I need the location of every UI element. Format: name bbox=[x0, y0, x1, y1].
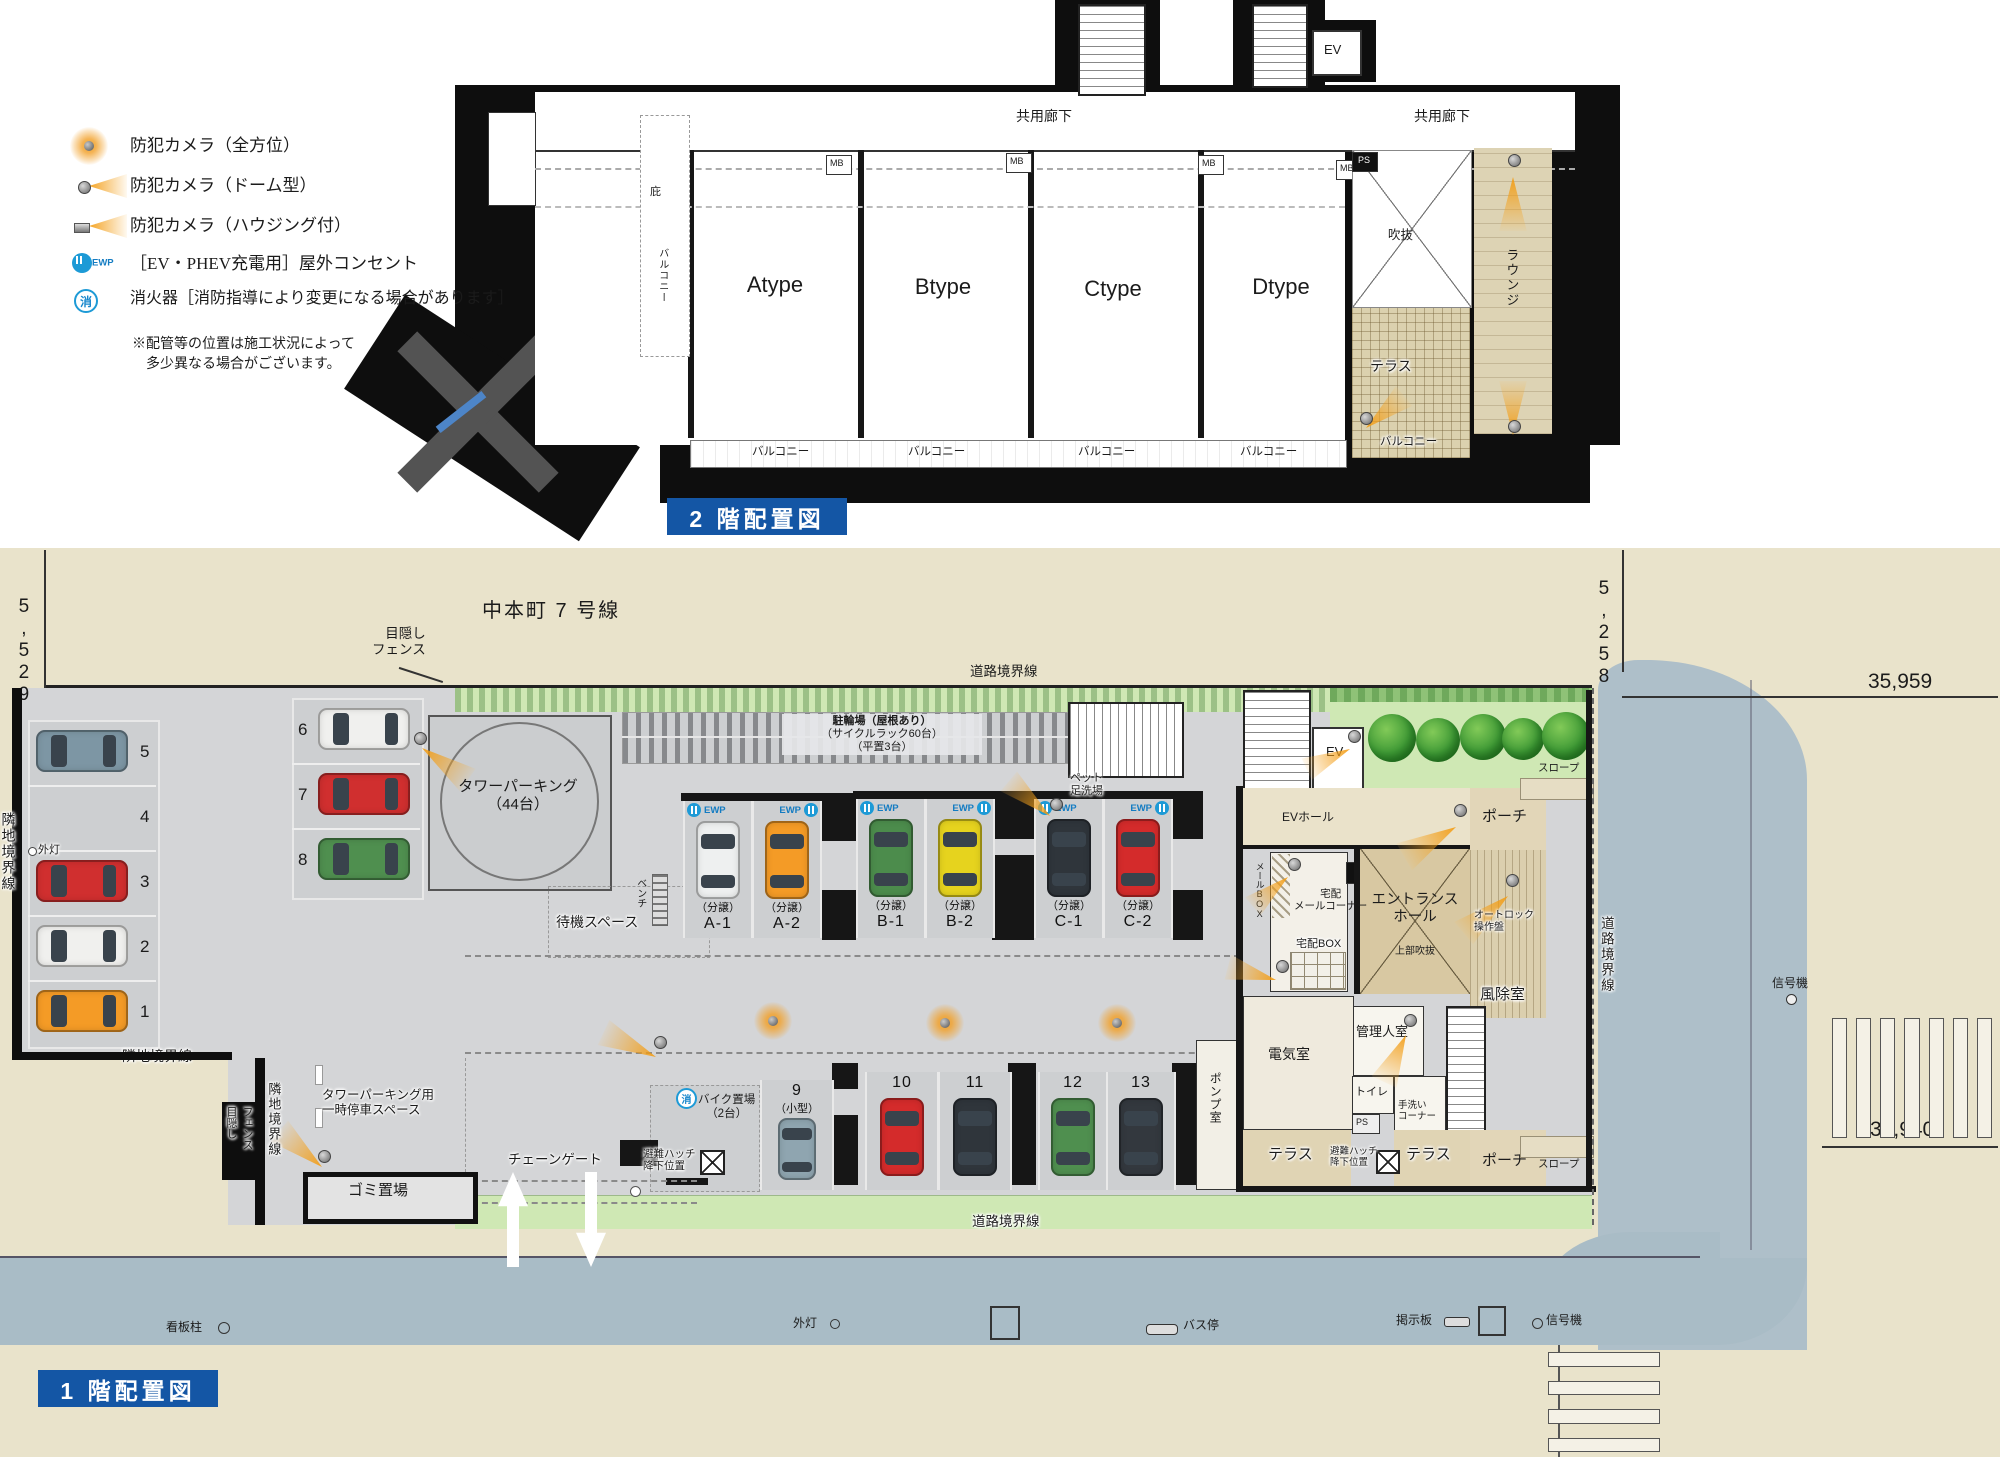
car-icon bbox=[1116, 819, 1160, 897]
ewp-outlet-icon bbox=[860, 801, 874, 815]
car-icon bbox=[778, 1118, 816, 1180]
slope-label: スロープ bbox=[1538, 1158, 1579, 1170]
dome-camera-icon bbox=[318, 1150, 331, 1163]
bench-label: ベンチ bbox=[634, 878, 646, 908]
legend-item-label: 消火器［消防指導により変更になる場合があります］ bbox=[130, 290, 514, 309]
takuhai-box-label: 宅配BOX bbox=[1296, 938, 1341, 951]
ewp-outlet-icon bbox=[977, 801, 991, 815]
wall bbox=[822, 793, 856, 841]
balcony-label: バルコニー bbox=[752, 446, 809, 460]
wall bbox=[1236, 1186, 1596, 1192]
windbreak-label: 風除室 bbox=[1480, 986, 1525, 1004]
unit-label: Atype bbox=[730, 272, 820, 298]
board-label: 掲示板 bbox=[1396, 1313, 1432, 1327]
wall bbox=[832, 1115, 858, 1185]
hedge-strip bbox=[455, 688, 1330, 712]
slope-label: スロープ bbox=[1538, 762, 1579, 774]
wall bbox=[1028, 150, 1034, 438]
gate-dash bbox=[462, 1180, 697, 1182]
dome-camera-icon bbox=[78, 181, 91, 194]
wall bbox=[681, 793, 825, 801]
dome-camera-icon bbox=[1508, 420, 1521, 433]
temp-space-label: タワーパーキング用一時停車スペース bbox=[322, 1088, 434, 1118]
busstop-label: バス停 bbox=[1183, 1318, 1219, 1332]
car-icon bbox=[938, 819, 982, 897]
busstop-icon bbox=[1146, 1324, 1178, 1335]
stall-no: 1 bbox=[140, 1002, 149, 1022]
car-icon bbox=[318, 838, 410, 880]
f2-lounge-label: ラウンジ bbox=[1504, 248, 1519, 308]
lane-dash bbox=[465, 1052, 1245, 1054]
dome-camera-icon bbox=[654, 1036, 667, 1049]
crosswalk-south bbox=[1548, 1352, 1660, 1452]
corridor-label: 共用廊下 bbox=[1414, 108, 1470, 125]
signpost-label: 看板柱 bbox=[166, 1320, 202, 1334]
stall-no: 2 bbox=[140, 937, 149, 957]
balcony-side-label: バルコニー bbox=[656, 248, 668, 303]
car-icon bbox=[318, 708, 410, 750]
f1-title: 1 階配置図 bbox=[38, 1370, 218, 1407]
parking-stall-A2: EWP （分譲） A-2 bbox=[752, 801, 822, 938]
board-icon bbox=[1444, 1317, 1470, 1327]
legend: 防犯カメラ（全方位） 防犯カメラ（ドーム型） 防犯カメラ（ハウジング付） EWP… bbox=[70, 125, 540, 375]
stall-id: B-1 bbox=[877, 913, 905, 931]
dome-camera-icon bbox=[1508, 154, 1521, 167]
road-boundary-label: 道路境界線 bbox=[972, 1214, 1040, 1230]
side-balcony bbox=[640, 115, 690, 357]
dome-camera-icon bbox=[1454, 804, 1467, 817]
site-plan-page: 5,529 5,258 35,959 35,940 中本町 7 号線 道路境界線… bbox=[0, 0, 2000, 1457]
stall-id: A-2 bbox=[773, 915, 801, 933]
property-dash bbox=[1592, 688, 1594, 1225]
bunjo-label: （分譲） bbox=[869, 897, 913, 913]
legend-item-label: ［EV・PHEV充電用］屋外コンセント bbox=[130, 254, 418, 274]
stall-id: B-2 bbox=[946, 913, 974, 931]
toilet-label: トイレ bbox=[1355, 1086, 1388, 1099]
housing-camera-icon bbox=[74, 223, 90, 233]
parking-stall-11: 11 bbox=[938, 1072, 1012, 1190]
camera-beam bbox=[89, 213, 127, 239]
stall-tick bbox=[315, 1065, 323, 1085]
signpost-icon bbox=[218, 1322, 230, 1334]
stairs bbox=[1243, 690, 1311, 790]
stall-sep bbox=[28, 980, 156, 982]
omni-camera-icon bbox=[754, 1002, 792, 1040]
car-icon bbox=[953, 1098, 997, 1176]
stall-id: C-2 bbox=[1124, 913, 1153, 931]
wall bbox=[1354, 848, 1360, 994]
dome-camera-icon bbox=[1276, 960, 1289, 973]
ewp-outlet-icon bbox=[687, 803, 701, 817]
washstand-label: 手洗いコーナー bbox=[1398, 1100, 1436, 1122]
stall-no: 10 bbox=[892, 1074, 912, 1092]
manager-label: 管理人室 bbox=[1356, 1024, 1408, 1039]
fence-label: 目隠しフェンス bbox=[364, 626, 426, 658]
stall-no: 5 bbox=[140, 742, 149, 762]
ewp-outlet-icon bbox=[804, 803, 818, 817]
bunjo-label: （分譲） bbox=[696, 899, 740, 915]
road-boundary-label: 道路境界線 bbox=[1598, 916, 1614, 994]
south-road bbox=[0, 1258, 1720, 1345]
kogata-label: （小型） bbox=[775, 1100, 819, 1116]
fence-label: 目隠し bbox=[224, 1106, 237, 1139]
unit-label: Btype bbox=[898, 274, 988, 300]
tree-icon bbox=[1542, 712, 1590, 760]
signal-icon bbox=[1786, 994, 1797, 1005]
dome-camera-icon bbox=[1288, 858, 1301, 871]
porch-label: ポーチ bbox=[1482, 808, 1527, 826]
stall-no: 13 bbox=[1131, 1074, 1151, 1092]
bunjo-label: （分譲） bbox=[938, 897, 982, 913]
signal-icon bbox=[1532, 1318, 1543, 1329]
wall bbox=[1198, 150, 1204, 438]
legend-item-label: 防犯カメラ（ドーム型） bbox=[130, 176, 317, 196]
extinguisher-icon: 消 bbox=[74, 289, 98, 313]
ps-label: PS bbox=[1358, 155, 1370, 166]
ev-label: EV bbox=[1324, 42, 1341, 57]
stall-id: A-1 bbox=[704, 915, 732, 933]
parking-stall-12: 12 bbox=[1038, 1072, 1108, 1190]
unit-label: Ctype bbox=[1068, 276, 1158, 302]
omni-camera-icon bbox=[926, 1004, 964, 1042]
electric-label: 電気室 bbox=[1268, 1046, 1310, 1063]
wall bbox=[1236, 786, 1243, 1190]
stall-no: 7 bbox=[298, 785, 307, 805]
neighbor-boundary-label: 隣地境界線 bbox=[0, 812, 17, 892]
gate-post bbox=[630, 1186, 641, 1197]
parking-stall-10: 10 bbox=[865, 1072, 939, 1190]
road-boundary-label: 道路境界線 bbox=[970, 664, 1038, 680]
streetlight-label: 外灯 bbox=[38, 844, 60, 857]
car-icon bbox=[318, 773, 410, 815]
tree-icon bbox=[1460, 714, 1506, 760]
bike-area-label: バイク置場（2台） bbox=[698, 1094, 755, 1121]
ev-hall-label: EVホール bbox=[1282, 810, 1334, 824]
parcel-lockers bbox=[1290, 952, 1346, 990]
wall bbox=[822, 890, 856, 940]
wall bbox=[1173, 791, 1203, 839]
ewp-outlet-icon: EWP bbox=[72, 253, 114, 273]
car-icon bbox=[1051, 1098, 1095, 1176]
stall-sep bbox=[292, 763, 420, 765]
car-icon bbox=[880, 1098, 924, 1176]
car-icon bbox=[765, 821, 809, 899]
f2-title: 2 階配置図 bbox=[667, 498, 847, 535]
stall-id: C-1 bbox=[1055, 913, 1084, 931]
lane-line bbox=[1750, 680, 1752, 1250]
f2-terrace-label: テラス bbox=[1370, 358, 1412, 375]
hatch-box bbox=[1376, 1150, 1400, 1174]
legend-item-label: 防犯カメラ（ハウジング付） bbox=[130, 216, 351, 236]
dome-camera-icon bbox=[1506, 874, 1519, 887]
dim-line bbox=[44, 550, 46, 688]
stall-no: 6 bbox=[298, 720, 307, 740]
dim-line bbox=[1822, 1146, 1998, 1148]
legend-item-label: 防犯カメラ（全方位） bbox=[130, 136, 300, 156]
trash-label: ゴミ置場 bbox=[348, 1182, 408, 1200]
extinguisher-icon: 消 bbox=[676, 1088, 697, 1109]
mb-label: MB bbox=[1202, 158, 1216, 169]
utility-box-icon bbox=[1478, 1306, 1506, 1336]
wall bbox=[1008, 1063, 1036, 1185]
streetlight-icon bbox=[28, 847, 37, 856]
car-icon bbox=[36, 990, 128, 1032]
wall bbox=[858, 150, 864, 438]
lane-dash bbox=[465, 955, 1240, 957]
parking-stall-B2: EWP （分譲） B-2 bbox=[925, 799, 995, 938]
parking-stall-A1: EWP （分譲） A-1 bbox=[683, 801, 753, 938]
ewp-outlet-icon bbox=[1155, 801, 1169, 815]
hatch-label: 避難ハッチ降下位置 bbox=[643, 1148, 696, 1173]
street-name: 中本町 7 号線 bbox=[482, 600, 620, 624]
car-icon bbox=[696, 821, 740, 899]
tower-parking-label: タワーパーキング（44台） bbox=[438, 778, 598, 813]
mb-label: MB bbox=[1010, 156, 1024, 167]
balcony-label: バルコニー bbox=[908, 446, 965, 460]
dome-camera-icon bbox=[1360, 412, 1373, 425]
pump-room-label: ポンプ室 bbox=[1208, 1072, 1222, 1124]
wall bbox=[992, 855, 1034, 940]
parking-stall-9: 9 （小型） bbox=[760, 1080, 834, 1190]
stall-sep bbox=[28, 785, 156, 787]
car-icon bbox=[36, 860, 128, 902]
dome-camera-icon bbox=[1404, 1014, 1417, 1027]
stairs bbox=[1446, 1006, 1486, 1136]
tree-icon bbox=[1502, 718, 1544, 760]
car-icon bbox=[1047, 819, 1091, 897]
mail-corner-label: 宅配メールコーナー bbox=[1294, 888, 1367, 913]
electric-room bbox=[1243, 996, 1354, 1130]
slope-strip bbox=[1520, 778, 1594, 800]
bunjo-label: （分譲） bbox=[765, 899, 809, 915]
stairs bbox=[1252, 4, 1308, 88]
stall-no: 4 bbox=[140, 807, 149, 827]
neighbor-boundary-label: 隣地境界線 bbox=[266, 1082, 281, 1157]
pet-wash-label: ペット足洗場 bbox=[1070, 772, 1103, 798]
stall-no: 3 bbox=[140, 872, 149, 892]
dim-line bbox=[1622, 696, 1998, 698]
gate-dash bbox=[462, 1202, 697, 1204]
omni-camera-icon bbox=[70, 127, 108, 165]
autolock-label: オートロック操作盤 bbox=[1474, 910, 1534, 934]
hatch-box bbox=[700, 1150, 725, 1175]
hedge bbox=[1330, 688, 1592, 702]
parking-stall-B1: EWP （分譲） B-1 bbox=[856, 799, 926, 938]
crosswalk-east bbox=[1832, 1018, 1992, 1138]
streetlight-icon bbox=[830, 1319, 840, 1329]
stall-sep bbox=[28, 915, 156, 917]
balcony-label: バルコニー bbox=[1240, 446, 1297, 460]
signal-label: 信号機 bbox=[1546, 1313, 1582, 1327]
car-icon bbox=[1119, 1098, 1163, 1176]
parking-stall-13: 13 bbox=[1106, 1072, 1176, 1190]
entrance-hall-label: エントランスホール bbox=[1362, 892, 1468, 926]
chain-gate-label: チェーンゲート bbox=[508, 1152, 602, 1168]
tree-icon bbox=[1368, 714, 1416, 762]
wall bbox=[832, 1063, 858, 1089]
stall-no: 8 bbox=[298, 850, 307, 870]
bunjo-label: （分譲） bbox=[1047, 897, 1091, 913]
balcony-label: バルコニー bbox=[1078, 446, 1135, 460]
car-icon bbox=[869, 819, 913, 897]
unit-label: Dtype bbox=[1236, 274, 1326, 300]
mb-label: MB bbox=[830, 158, 844, 169]
wait-space-label: 待機スペース bbox=[556, 914, 638, 931]
dome-camera-icon bbox=[1348, 730, 1361, 743]
f2-balcony-annex-label: バルコニー bbox=[1380, 436, 1437, 450]
stall-no: 11 bbox=[966, 1074, 985, 1092]
ps-label: PS bbox=[1356, 1117, 1368, 1128]
bicycle-label: 駐輪場（屋根あり） （サイクルラック60台） （平置3台） bbox=[782, 714, 982, 755]
stall-no: 9 bbox=[792, 1082, 802, 1100]
terrace-label: テラス bbox=[1268, 1146, 1313, 1164]
stairs bbox=[1068, 702, 1184, 778]
car-icon bbox=[36, 925, 128, 967]
stall-no: 12 bbox=[1063, 1074, 1083, 1092]
car-icon bbox=[36, 730, 128, 772]
dim-top: 35,959 bbox=[1868, 670, 1932, 695]
bench-icon bbox=[652, 874, 668, 926]
void-label: 吹抜 bbox=[1388, 228, 1413, 243]
parking-stall-C2: EWP （分譲） C-2 bbox=[1103, 799, 1173, 938]
bunjo-label: （分譲） bbox=[1116, 897, 1160, 913]
dim-line bbox=[1622, 550, 1624, 672]
omni-camera-icon bbox=[1098, 1004, 1136, 1042]
parking-stall-C1: EWP （分譲） C-1 bbox=[1034, 799, 1104, 938]
boundary-strip bbox=[12, 1052, 232, 1060]
signal-label: 信号機 bbox=[1772, 976, 1808, 990]
dome-camera-icon bbox=[414, 732, 427, 745]
wall bbox=[1173, 890, 1203, 940]
streetlight-label: 外灯 bbox=[793, 1316, 817, 1330]
hatch-label: 避難ハッチ降下位置 bbox=[1330, 1146, 1378, 1168]
wall bbox=[853, 791, 995, 799]
legend-note: ※配管等の位置は施工状況によって 多少異なる場合がございます。 bbox=[132, 337, 355, 373]
hisashi-label: 庇 bbox=[650, 186, 661, 199]
dome-camera-icon bbox=[1050, 798, 1063, 811]
fence-label: フェンス bbox=[240, 1106, 253, 1150]
dim-right: 5,258 bbox=[1592, 578, 1614, 688]
terrace-label: テラス bbox=[1406, 1146, 1451, 1164]
utility-box-icon bbox=[990, 1306, 1020, 1340]
corridor-label: 共用廊下 bbox=[1016, 108, 1072, 125]
stairs bbox=[1078, 4, 1146, 96]
slope-strip bbox=[1520, 1136, 1594, 1158]
upper-void-label: 上部吹抜 bbox=[1382, 946, 1448, 958]
stall-sep bbox=[292, 828, 420, 830]
road-edge-line bbox=[0, 1256, 1700, 1258]
camera-beam bbox=[89, 173, 127, 199]
tree-icon bbox=[1416, 718, 1460, 762]
